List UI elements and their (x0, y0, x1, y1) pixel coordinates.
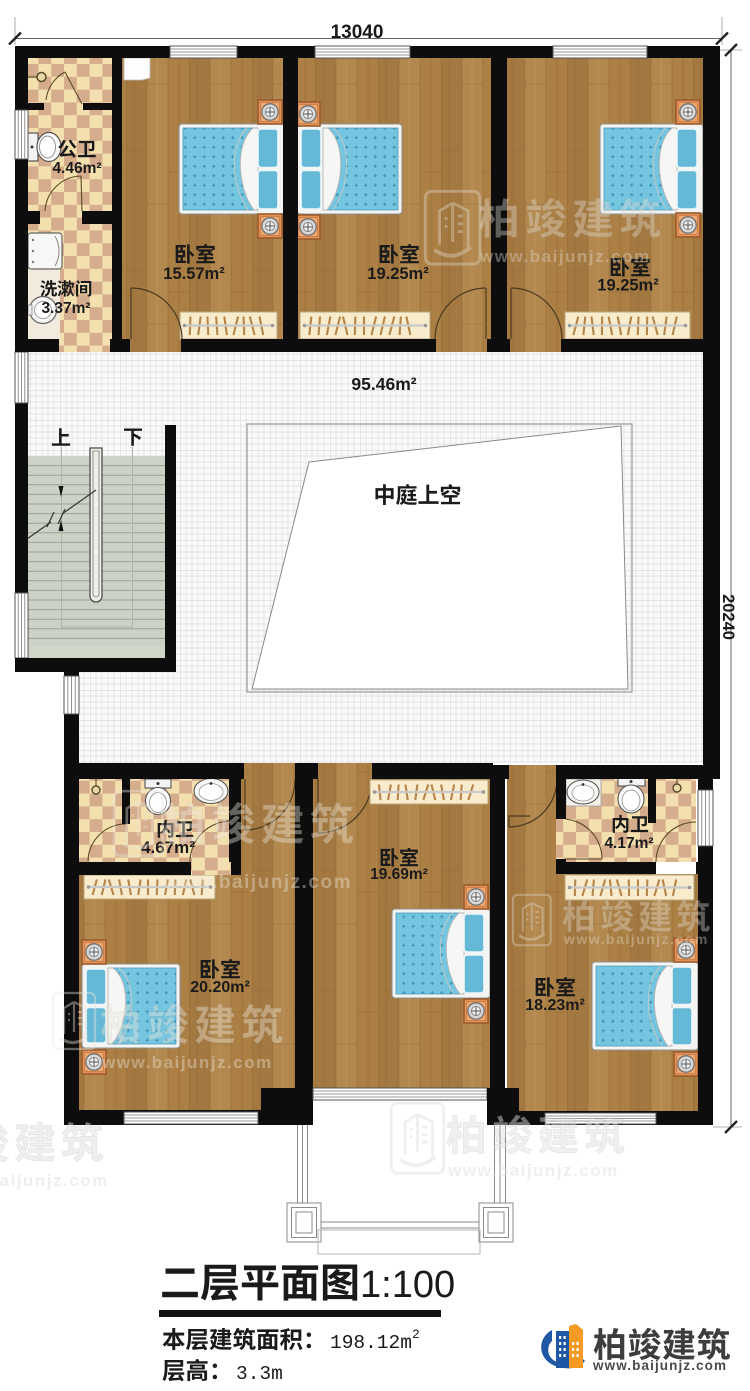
svg-text:www.baijunjz.com: www.baijunjz.com (101, 1053, 273, 1072)
svg-text:19.69m²: 19.69m² (370, 866, 428, 883)
svg-text:www.baijunjz.com: www.baijunjz.com (479, 247, 651, 266)
svg-text:4.17m²: 4.17m² (604, 835, 653, 852)
svg-text:www.baijunjz.com: www.baijunjz.com (447, 1161, 619, 1180)
svg-text:www.baijunjz.com: www.baijunjz.com (163, 872, 352, 893)
svg-text:3.37m²: 3.37m² (41, 300, 90, 317)
svg-text:19.25m²: 19.25m² (597, 277, 659, 295)
svg-text:www.baijunjz.com: www.baijunjz.com (563, 931, 709, 947)
svg-text:3.3m: 3.3m (236, 1363, 283, 1385)
svg-text:95.46m²: 95.46m² (351, 374, 416, 394)
svg-text:19.25m²: 19.25m² (367, 265, 429, 283)
svg-text:2: 2 (412, 1327, 420, 1342)
svg-text:15.57m²: 15.57m² (163, 265, 225, 283)
svg-text:www.baijunjz.com: www.baijunjz.com (592, 1358, 727, 1373)
svg-text:18.23m²: 18.23m² (525, 997, 585, 1014)
svg-text:20.20m²: 20.20m² (190, 979, 250, 996)
svg-text:13040: 13040 (331, 22, 384, 43)
svg-text:4.46m²: 4.46m² (52, 160, 101, 177)
svg-text:20240: 20240 (719, 594, 737, 640)
svg-text:198.12m: 198.12m (330, 1332, 412, 1354)
svg-text:www.baijunjz.com: www.baijunjz.com (0, 1171, 109, 1190)
svg-text:1:100: 1:100 (360, 1264, 455, 1306)
